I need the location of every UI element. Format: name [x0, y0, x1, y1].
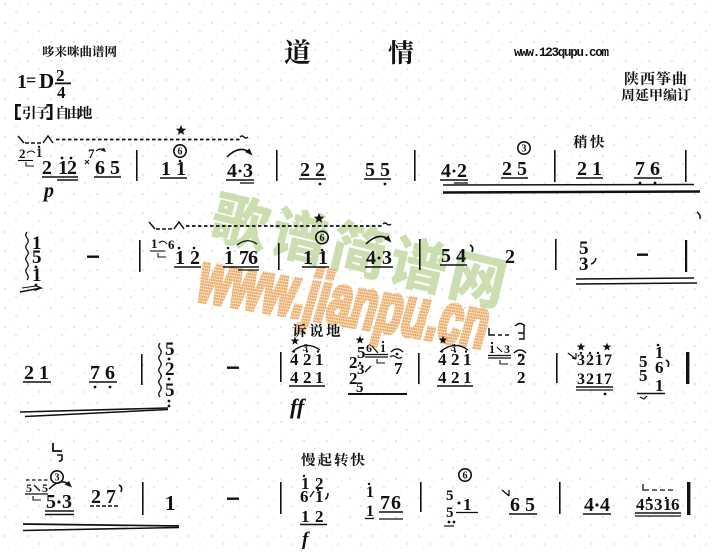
svg-text:4: 4 — [441, 160, 451, 182]
svg-text:2: 2 — [303, 368, 312, 387]
svg-text:6: 6 — [168, 237, 175, 252]
svg-text:7: 7 — [604, 352, 612, 369]
svg-text:3: 3 — [243, 160, 253, 182]
svg-text:2: 2 — [315, 159, 325, 181]
svg-text:1: 1 — [489, 342, 495, 356]
svg-text:1: 1 — [224, 247, 234, 269]
svg-text:4: 4 — [584, 494, 594, 516]
svg-text:3: 3 — [357, 362, 365, 378]
svg-text:www.123qupu.com: www.123qupu.com — [514, 46, 609, 60]
svg-text:6: 6 — [671, 495, 680, 514]
svg-text:6: 6 — [178, 146, 183, 157]
svg-text:3: 3 — [577, 371, 585, 388]
svg-text:1: 1 — [366, 484, 374, 501]
svg-text:1: 1 — [315, 487, 324, 506]
svg-text:1: 1 — [595, 371, 603, 388]
svg-text:7: 7 — [88, 146, 95, 161]
svg-text:D: D — [39, 69, 54, 93]
svg-text:6: 6 — [300, 487, 309, 506]
svg-text:5: 5 — [639, 366, 648, 385]
svg-text:5: 5 — [517, 158, 527, 180]
svg-text:2: 2 — [586, 371, 594, 388]
svg-text:1: 1 — [175, 247, 185, 269]
svg-text:4: 4 — [366, 247, 376, 269]
svg-text:4: 4 — [636, 495, 645, 514]
svg-text:5: 5 — [165, 380, 175, 401]
svg-text:4: 4 — [290, 350, 299, 369]
svg-text:6: 6 — [655, 358, 664, 377]
svg-text:2: 2 — [517, 368, 526, 387]
svg-text:2: 2 — [19, 146, 26, 161]
svg-text:2: 2 — [165, 359, 175, 380]
svg-text:1: 1 — [315, 350, 324, 369]
svg-text:2: 2 — [67, 157, 77, 179]
svg-text:2: 2 — [42, 157, 52, 179]
svg-text:2: 2 — [303, 350, 312, 369]
svg-text:1: 1 — [39, 362, 49, 384]
svg-text:2: 2 — [315, 507, 324, 526]
svg-text:5: 5 — [525, 494, 535, 516]
svg-text:1: 1 — [303, 247, 313, 269]
svg-text:1: 1 — [655, 376, 664, 395]
svg-text:6: 6 — [248, 247, 258, 269]
svg-text:4: 4 — [227, 160, 237, 182]
svg-text:=: = — [26, 70, 36, 90]
svg-text:3: 3 — [504, 342, 510, 356]
svg-text:2: 2 — [505, 246, 515, 268]
svg-text:7: 7 — [106, 486, 116, 508]
svg-text:2: 2 — [577, 158, 587, 180]
svg-text:6: 6 — [391, 492, 401, 514]
svg-text:1: 1 — [463, 350, 472, 369]
svg-text:6: 6 — [320, 233, 325, 244]
svg-text:6: 6 — [105, 362, 115, 384]
svg-text:5: 5 — [165, 339, 175, 360]
svg-text:1: 1 — [592, 158, 602, 180]
svg-text:1: 1 — [463, 495, 472, 514]
svg-text:1: 1 — [315, 368, 324, 387]
svg-text:5: 5 — [46, 491, 56, 513]
svg-text:2: 2 — [24, 362, 34, 384]
svg-text:5: 5 — [446, 488, 454, 504]
svg-text:7: 7 — [90, 362, 100, 384]
svg-text:2: 2 — [457, 160, 467, 182]
svg-text:1: 1 — [380, 341, 386, 355]
svg-text:7: 7 — [604, 371, 612, 388]
svg-text:3: 3 — [62, 491, 72, 513]
svg-text:4: 4 — [600, 494, 610, 516]
svg-text:4: 4 — [438, 368, 447, 387]
svg-text:1: 1 — [151, 236, 158, 251]
svg-text:2: 2 — [502, 158, 512, 180]
svg-text:6: 6 — [650, 158, 660, 180]
svg-text:6: 6 — [366, 341, 372, 355]
svg-text:6: 6 — [463, 470, 468, 481]
svg-text:2: 2 — [91, 486, 101, 508]
svg-text:1: 1 — [301, 507, 310, 526]
svg-text:4: 4 — [456, 245, 466, 267]
svg-text:2: 2 — [451, 368, 460, 387]
svg-text:4: 4 — [57, 83, 66, 102]
svg-text:7: 7 — [380, 492, 390, 514]
svg-text:2: 2 — [586, 352, 594, 369]
svg-text:3: 3 — [654, 495, 663, 514]
svg-text:7: 7 — [394, 359, 403, 378]
svg-text:1: 1 — [366, 503, 374, 520]
svg-text:5: 5 — [110, 157, 120, 179]
svg-text:1: 1 — [595, 352, 603, 369]
svg-text:4: 4 — [438, 350, 447, 369]
svg-text:5: 5 — [365, 159, 375, 181]
svg-text:2: 2 — [300, 159, 310, 181]
svg-text:2: 2 — [517, 350, 526, 369]
svg-text:3: 3 — [522, 143, 527, 154]
svg-text:2: 2 — [451, 350, 460, 369]
svg-text:3: 3 — [382, 247, 392, 269]
svg-text:5: 5 — [26, 481, 32, 495]
svg-text:7: 7 — [635, 158, 645, 180]
svg-text:1: 1 — [161, 158, 171, 180]
svg-text:6: 6 — [95, 157, 105, 179]
svg-text:5: 5 — [357, 343, 366, 362]
svg-text:6: 6 — [510, 494, 520, 516]
svg-text:1: 1 — [165, 491, 176, 515]
svg-text:5: 5 — [380, 159, 390, 181]
svg-text:1: 1 — [463, 368, 472, 387]
svg-text:5: 5 — [446, 505, 454, 521]
svg-text:1: 1 — [32, 265, 42, 286]
svg-text:p: p — [42, 180, 54, 202]
svg-text:3: 3 — [579, 254, 589, 275]
svg-text:4: 4 — [290, 368, 299, 387]
svg-text:3: 3 — [577, 352, 585, 369]
svg-text:5: 5 — [441, 245, 451, 267]
svg-text:2: 2 — [190, 247, 200, 269]
